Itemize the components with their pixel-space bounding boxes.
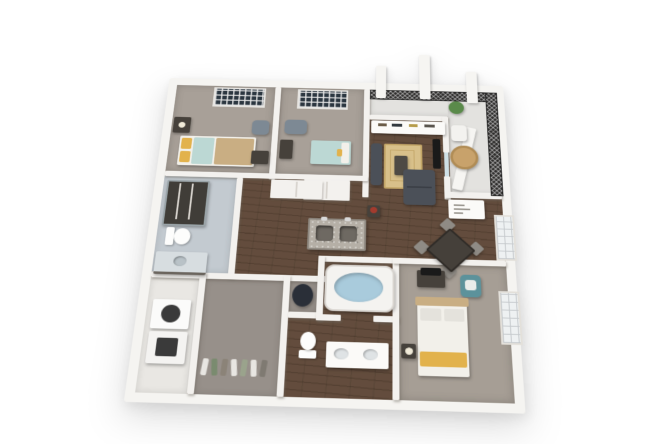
bedroom-a-armchair	[251, 120, 269, 135]
shower-frame-1	[175, 183, 181, 219]
master-bed	[417, 299, 469, 377]
plant-stand	[367, 205, 380, 217]
bedroom-a-pillow-1	[181, 138, 193, 149]
bedroom-b-accent-pillow	[337, 149, 342, 157]
walk-in-closet-floor	[194, 279, 284, 397]
balcony-pillar-1	[376, 66, 386, 99]
balcony-potted-plant	[448, 101, 464, 114]
media-console	[371, 120, 445, 135]
buffet-marks-2	[454, 208, 470, 210]
floorplan-image	[0, 0, 670, 444]
red-flowers	[370, 207, 377, 214]
master-armchair-pillow	[465, 280, 477, 291]
shower-frame-2	[188, 184, 194, 220]
island-sink-2	[339, 226, 357, 242]
console-decor-2	[392, 124, 402, 127]
closet-door-seam	[295, 182, 298, 197]
master-toilet-bowl	[300, 332, 316, 351]
toilet-2	[164, 225, 192, 247]
vanity-sink-1	[334, 348, 349, 360]
living-tv	[432, 139, 441, 169]
buffet-marks-3	[454, 212, 463, 214]
sofa	[403, 169, 436, 205]
wall-tub-room-bottom-a	[316, 314, 341, 321]
vanity-sink-2	[363, 349, 378, 361]
soaking-tub	[324, 264, 395, 313]
balcony-pillar-3	[466, 72, 478, 104]
balcony-chair	[451, 125, 467, 141]
bedroom-a-dresser	[172, 117, 191, 133]
vanity-2-sink	[173, 256, 187, 266]
bedroom-b-window	[297, 89, 348, 110]
master-armchair	[460, 275, 482, 298]
bedroom-a-desk	[251, 150, 270, 164]
console-decor-1	[378, 123, 387, 126]
balcony-pillar-2	[419, 55, 431, 100]
closet-clothes-4	[231, 359, 237, 376]
double-vanity	[326, 341, 389, 369]
buffet-marks-1	[454, 204, 465, 206]
bedroom-a-window	[212, 87, 266, 108]
closet-clothes-6	[251, 360, 257, 377]
washer-door	[160, 304, 181, 322]
apartment-building	[124, 78, 526, 414]
master-nightstand	[401, 344, 416, 359]
vanity-2	[153, 251, 208, 275]
bedroom-a-sheet	[191, 137, 215, 164]
closet-clothes-2	[211, 358, 217, 375]
sofa-cushion-seam	[407, 186, 432, 188]
island-sink-1	[316, 225, 334, 241]
washer	[150, 299, 192, 329]
bedroom-b-nightstand	[279, 140, 293, 159]
master-headboard	[415, 297, 468, 307]
bedroom-b-closet	[270, 179, 323, 199]
wardrobe-door-seam	[325, 182, 327, 199]
chaise	[370, 143, 382, 185]
tub-water	[334, 272, 384, 303]
bedroom-a-pillow-2	[179, 151, 191, 162]
bedroom-b-armchair	[284, 120, 307, 135]
dryer	[145, 331, 188, 364]
bedroom-a-lamp	[178, 122, 186, 128]
master-pillow-1	[420, 308, 441, 321]
dining-window	[494, 215, 517, 261]
master-lamp	[405, 347, 413, 355]
bedroom-a-footboard	[214, 138, 255, 165]
kitchen-island	[307, 218, 367, 251]
bedroom-a-bed	[177, 136, 257, 167]
shower	[162, 180, 210, 227]
bedroom-b-pillows	[341, 143, 349, 164]
dryer-door	[155, 338, 179, 357]
island-faucet-1	[321, 217, 327, 221]
balcony-sliding-door-glass	[444, 152, 449, 176]
master-toilet	[294, 330, 321, 362]
master-pillow-2	[444, 309, 465, 322]
buffet-cabinet	[448, 199, 485, 219]
master-yellow-throw	[420, 351, 467, 367]
master-toilet-tank	[298, 350, 316, 359]
master-window	[498, 291, 523, 345]
bedroom-b-bed	[310, 140, 351, 165]
toilet-2-bowl	[173, 228, 191, 245]
console-decor-3	[409, 124, 418, 127]
console-decor-4	[424, 124, 434, 127]
island-faucet-2	[345, 217, 351, 221]
master-tv	[421, 268, 442, 276]
